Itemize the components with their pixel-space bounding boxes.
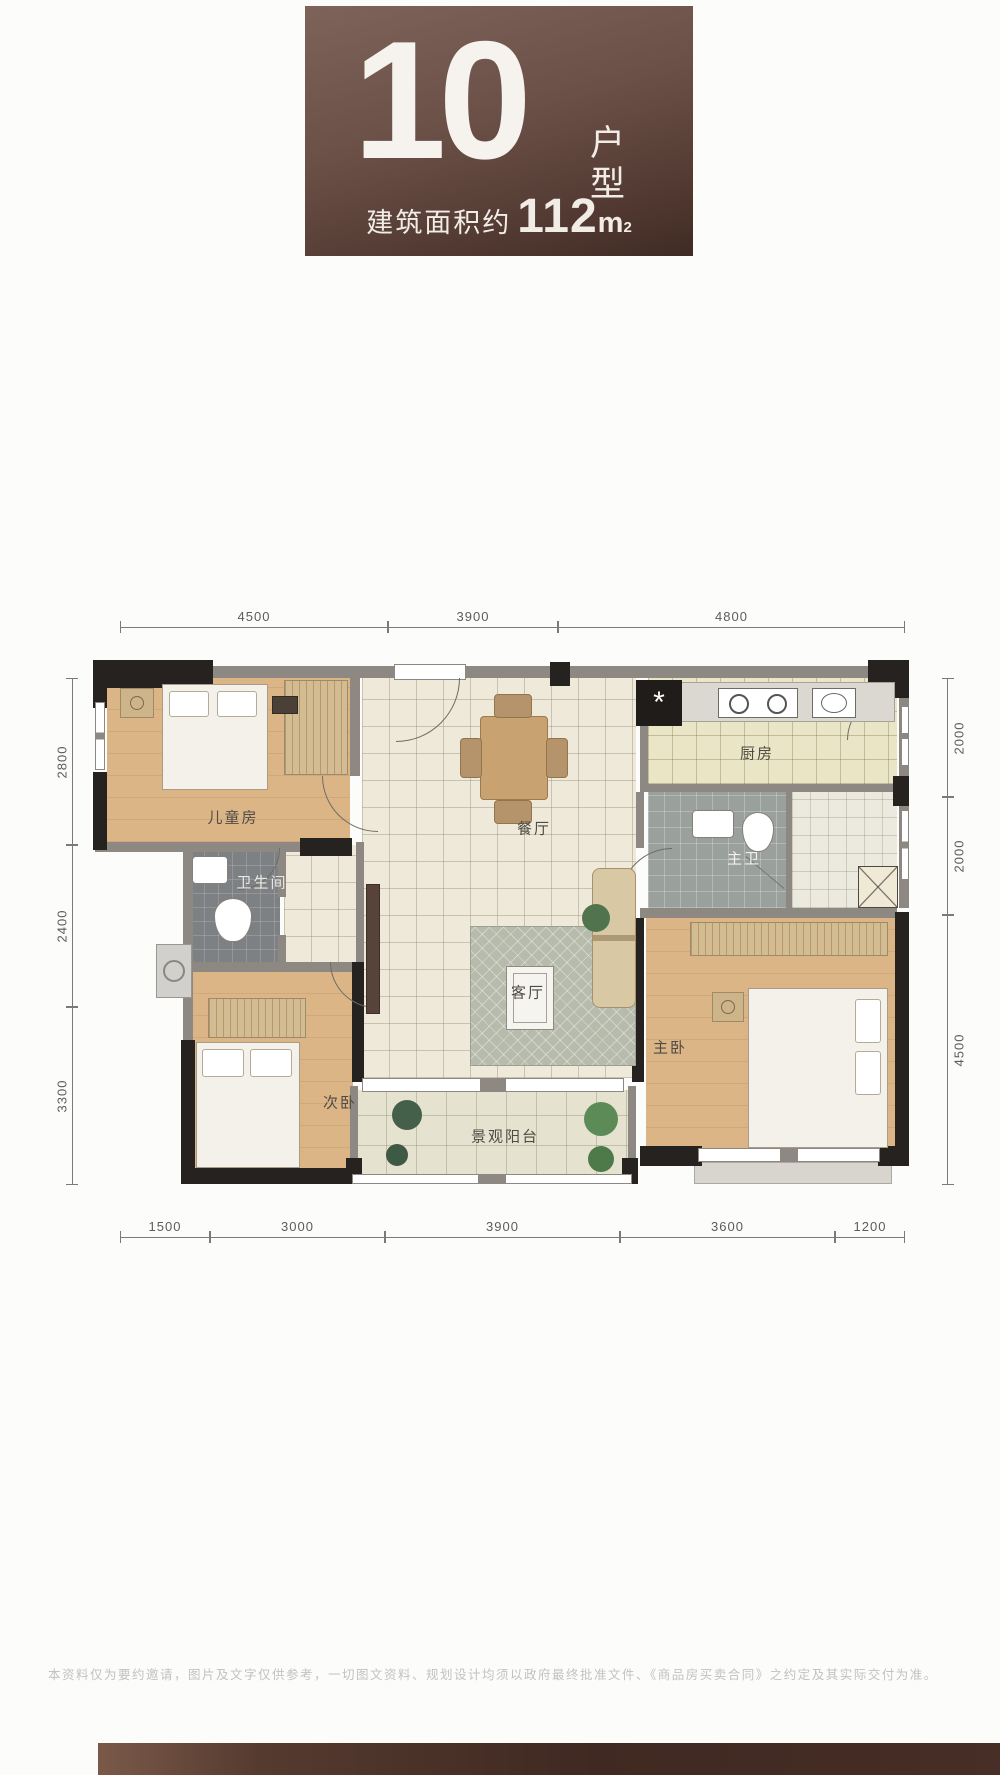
wall-segment: [278, 935, 286, 965]
nightstand: [712, 992, 744, 1022]
wall-segment-dark: [183, 1168, 353, 1184]
dim-bottom-2: 3900: [385, 1216, 620, 1238]
dim-right-0: 2000: [947, 678, 969, 797]
wall-corner: [893, 792, 909, 806]
room-label-children: 儿童房: [207, 807, 258, 828]
wall-pier: [300, 838, 352, 856]
wall-corner: [93, 772, 107, 850]
bay-window: [698, 1148, 880, 1162]
wall-segment: [350, 676, 360, 776]
bay-window-sill: [694, 1162, 892, 1184]
second-bed: [196, 1042, 300, 1168]
room-label-living: 客厅: [511, 982, 545, 1003]
balcony-railing: [352, 1174, 632, 1184]
window: [901, 706, 909, 766]
plant: [584, 1102, 618, 1136]
wall-corner: [878, 1146, 909, 1166]
pillow: [217, 691, 257, 717]
dim-top-2: 4800: [558, 606, 905, 628]
room-label-kitchen: 厨房: [740, 743, 774, 764]
dim-bottom-4: 1200: [835, 1216, 905, 1238]
children-wardrobe: [284, 680, 348, 775]
room-label-master-bathroom: 主卫: [727, 848, 761, 869]
floor-plan: * 儿童房 卫生间 次卧 餐厅 客厅 景观阳台 厨房 主卫 主卧 4500 39…: [0, 550, 1000, 1270]
hall-floor: [284, 845, 356, 964]
master-bed: [748, 988, 888, 1148]
master-bath-sink: [692, 810, 734, 838]
wall-segment: [356, 842, 364, 962]
pillow: [202, 1049, 244, 1077]
window: [901, 810, 909, 880]
unit-number: 10: [353, 12, 524, 188]
dining-chair: [460, 738, 482, 778]
bathroom-sink: [192, 856, 228, 884]
window: [95, 702, 105, 770]
room-label-master-bedroom: 主卧: [653, 1037, 687, 1058]
plant: [582, 904, 610, 932]
pillow: [169, 691, 209, 717]
room-label-second-bedroom: 次卧: [323, 1092, 357, 1113]
pillow: [855, 999, 881, 1043]
pillow: [855, 1051, 881, 1095]
area-unit: m: [598, 207, 624, 240]
bottom-brand-bar: [98, 1743, 1000, 1775]
wall-segment: [640, 784, 897, 792]
plant: [386, 1144, 408, 1166]
stove: [718, 688, 798, 718]
dim-left-1: 2400: [51, 845, 73, 1007]
wall-segment: [636, 792, 644, 848]
wall-corner: [640, 1146, 702, 1166]
balcony-sliding-door: [362, 1078, 624, 1092]
dim-left-2: 3300: [51, 1007, 73, 1185]
wall-segment: [640, 908, 897, 918]
dim-top-0: 4500: [120, 606, 388, 628]
dining-chair: [546, 738, 568, 778]
plant: [392, 1100, 422, 1130]
wall-segment-dark: [181, 1040, 195, 1184]
disclaimer-text: 本资料仅为要约邀请，图片及文字仅供参考，一切图文资料、规划设计均须以政府最终批准…: [48, 1664, 968, 1683]
dresser: [272, 696, 298, 714]
wall-pier: [550, 662, 570, 686]
washing-machine: [156, 944, 192, 998]
wall-segment-dark: [895, 912, 909, 1164]
area-unit-sup: 2: [623, 219, 631, 236]
dining-chair: [494, 694, 532, 718]
plant-stand-icon: *: [636, 680, 682, 726]
dim-right-1: 2000: [947, 797, 969, 915]
master-wardrobe: [690, 922, 888, 956]
children-bed: [162, 684, 268, 790]
dim-top-1: 3900: [388, 606, 558, 628]
second-bedroom-wardrobe: [208, 998, 306, 1038]
dim-bottom-3: 3600: [620, 1216, 835, 1238]
dining-table: [480, 716, 548, 800]
wall-segment: [786, 792, 792, 908]
plant: [588, 1146, 614, 1172]
pillow: [250, 1049, 292, 1077]
area-line: 建筑面积约 112 m 2: [305, 189, 693, 244]
dim-right-2: 4500: [947, 915, 969, 1185]
kitchen-sink: [812, 688, 856, 718]
flue-shaft: [858, 866, 898, 908]
wall-corner: [93, 660, 107, 708]
room-label-balcony: 景观阳台: [471, 1126, 539, 1147]
dim-left-0: 2800: [51, 678, 73, 845]
unit-header-panel: 10 户型 建筑面积约 112 m 2: [305, 6, 693, 256]
sofa: [592, 868, 636, 1008]
room-label-dining: 餐厅: [517, 818, 551, 839]
tv-cabinet: [366, 884, 380, 1014]
area-prefix: 建筑面积约: [366, 201, 511, 240]
area-value: 112: [517, 189, 597, 244]
nightstand: [120, 688, 154, 718]
dim-bottom-0: 1500: [120, 1216, 210, 1238]
dim-bottom-1: 3000: [210, 1216, 385, 1238]
wall-segment: [95, 666, 909, 678]
room-label-bathroom: 卫生间: [236, 872, 287, 893]
